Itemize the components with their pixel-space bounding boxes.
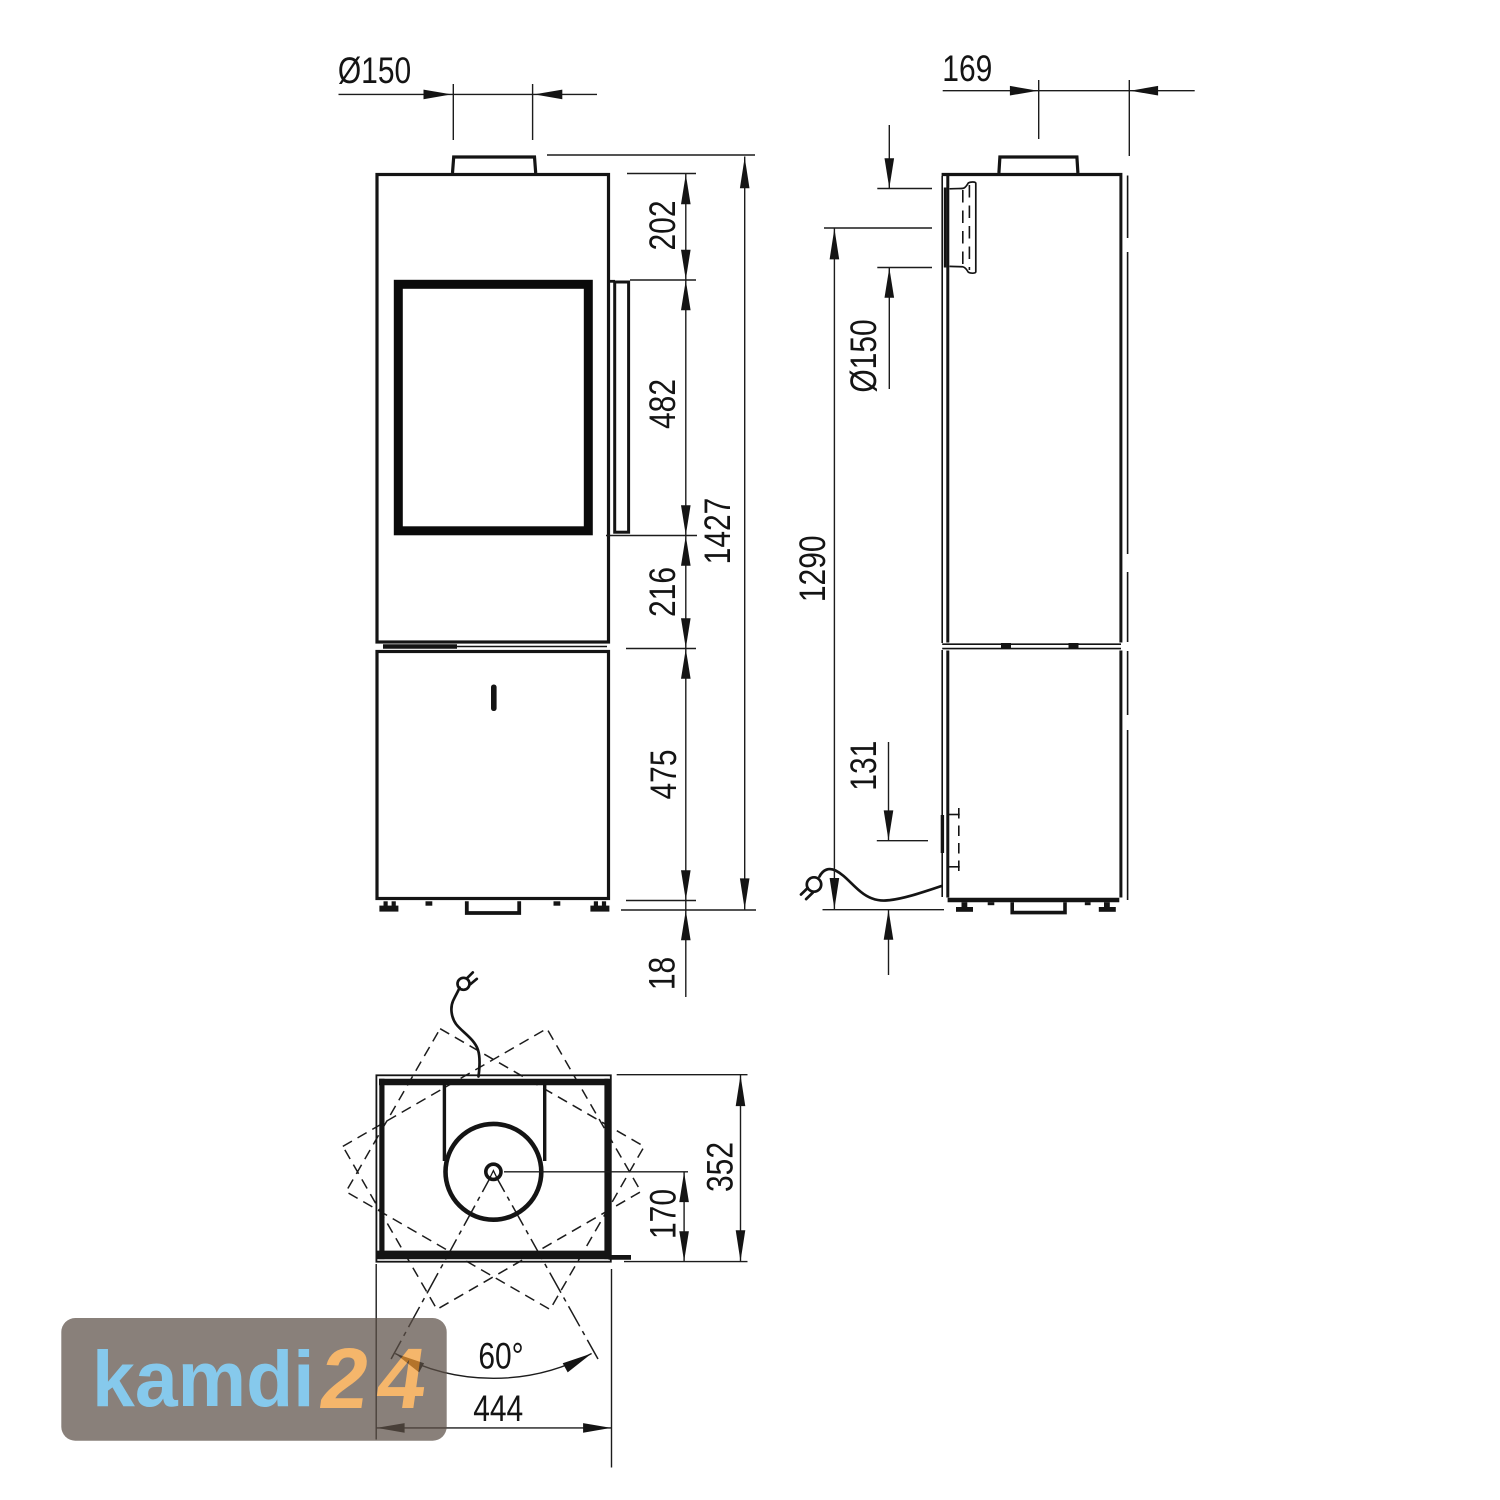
svg-text:475: 475 [643,749,684,799]
svg-text:170: 170 [643,1189,684,1239]
svg-text:169: 169 [942,48,992,89]
svg-text:1290: 1290 [792,535,833,602]
svg-text:216: 216 [642,567,683,617]
svg-text:Ø150: Ø150 [843,319,884,392]
svg-text:60°: 60° [478,1336,523,1377]
svg-text:202: 202 [642,200,683,250]
svg-text:18: 18 [642,957,683,990]
svg-text:131: 131 [843,741,884,791]
svg-text:Ø150: Ø150 [338,50,411,91]
svg-text:24: 24 [314,1331,441,1427]
svg-text:1427: 1427 [697,498,738,565]
svg-text:482: 482 [642,379,683,429]
svg-text:kamdi: kamdi [92,1334,315,1423]
svg-text:444: 444 [473,1388,523,1429]
svg-text:352: 352 [700,1142,741,1192]
